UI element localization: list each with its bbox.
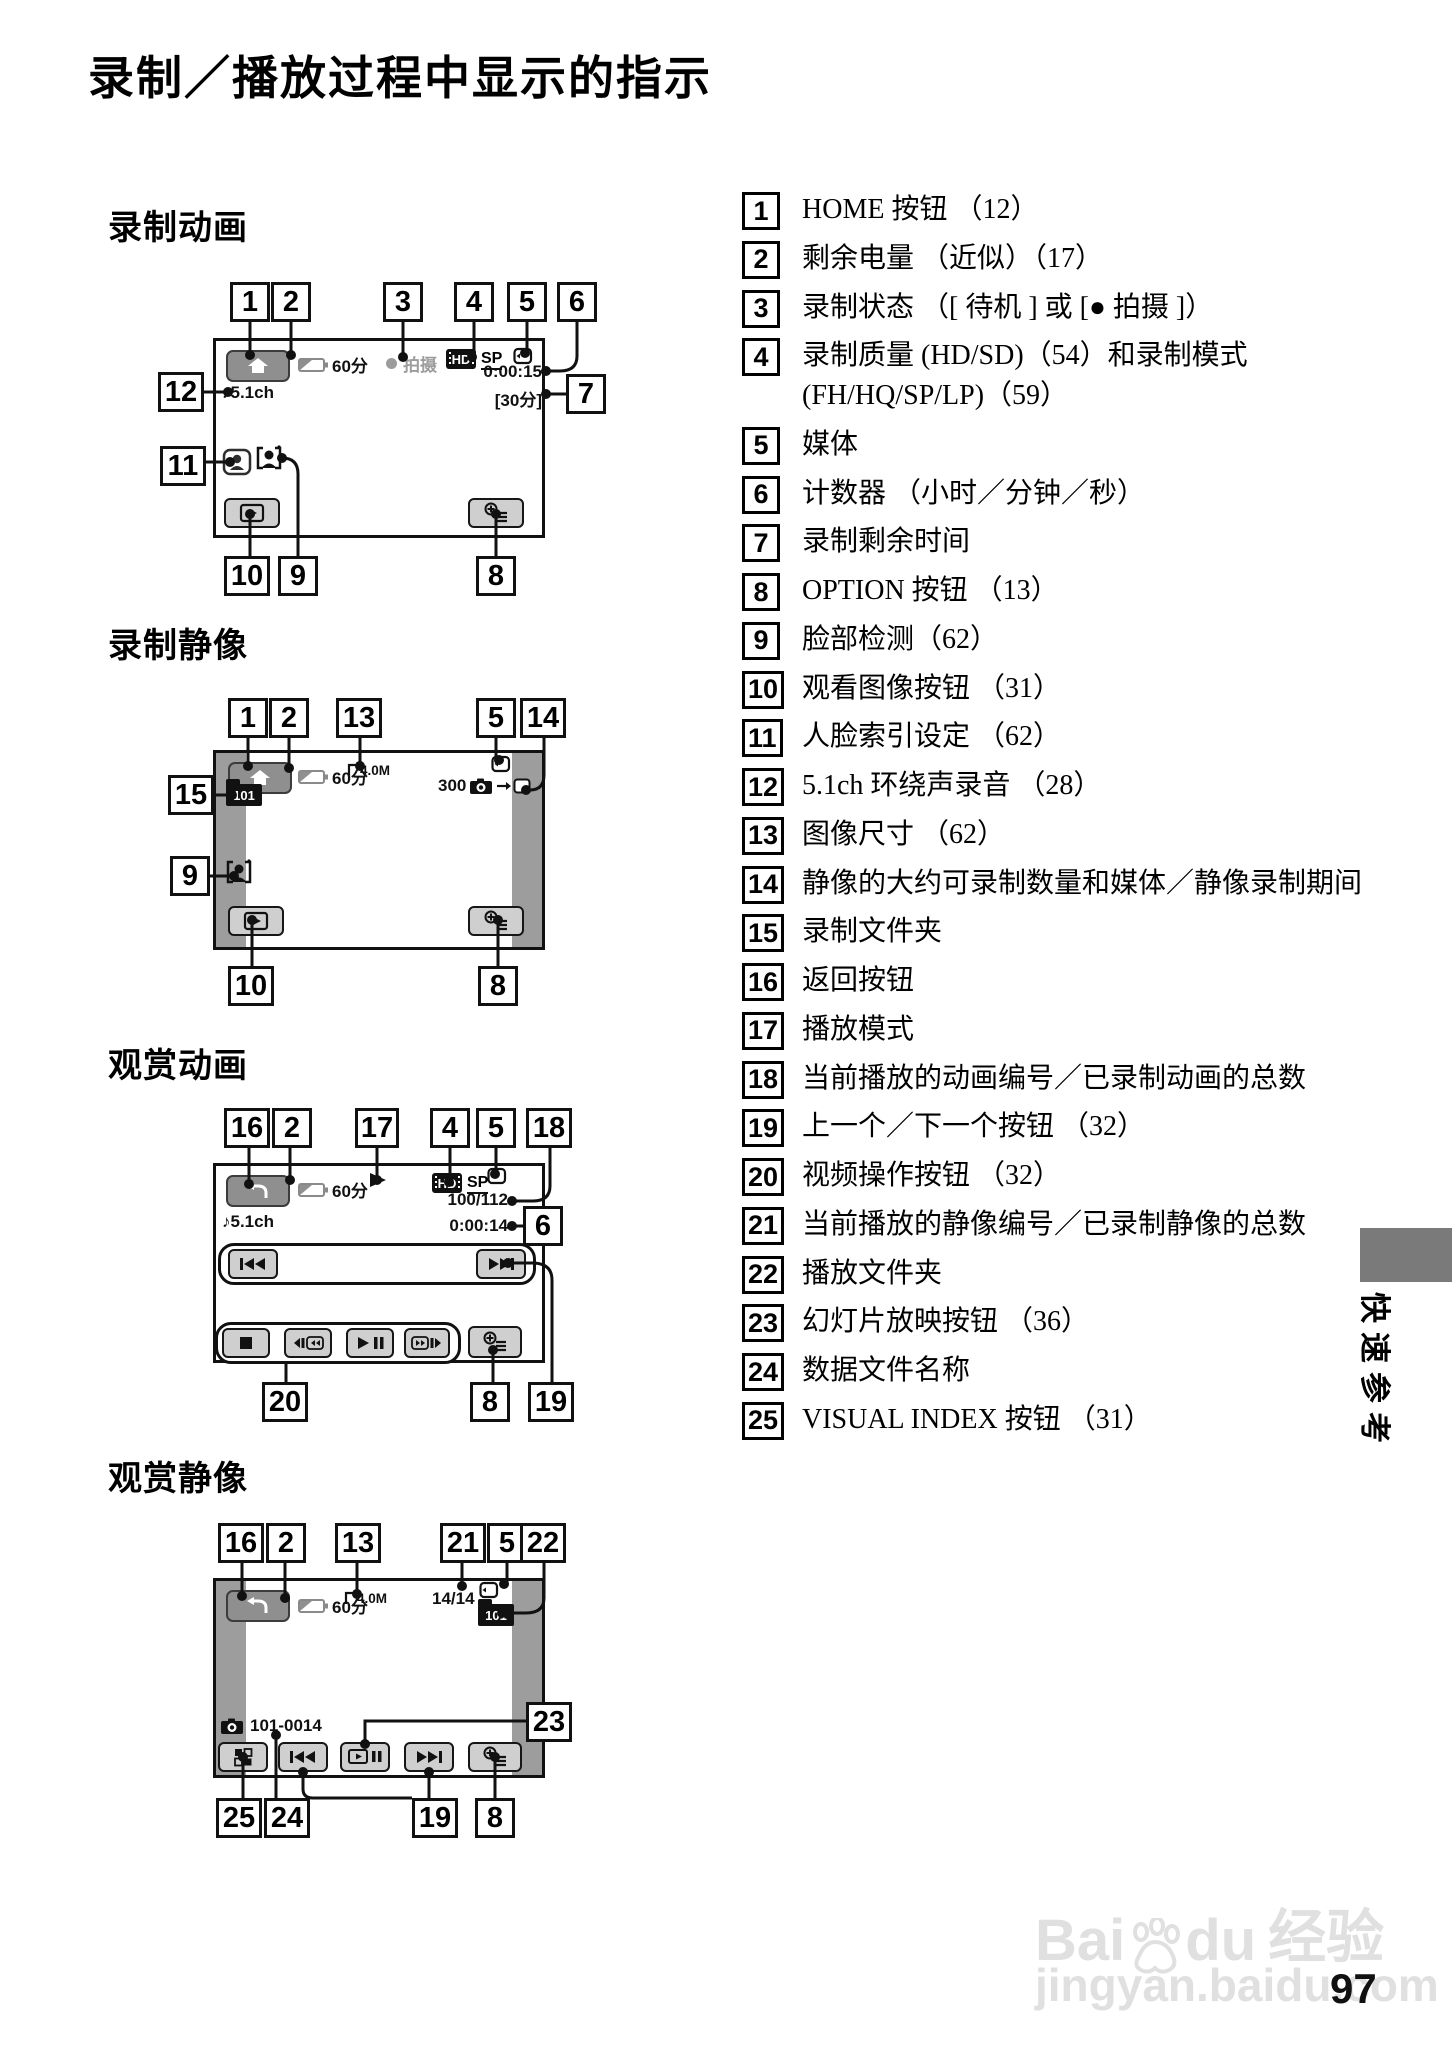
battery-icon	[298, 1182, 328, 1198]
stop-icon	[239, 1336, 253, 1350]
rec-folder-badge: 101	[226, 784, 262, 806]
image-size-label: 4.0M	[357, 1591, 387, 1606]
legend-item: 13图像尺寸 （62）	[742, 815, 1414, 855]
section-heading-rec-still: 录制静像	[108, 618, 248, 667]
legend-num: 16	[742, 963, 784, 1001]
media-mini-card-icon	[513, 778, 531, 794]
legend-item: 11人脸索引设定 （62）	[742, 717, 1414, 757]
legend-num: 20	[742, 1158, 784, 1196]
face-detection-icon	[224, 858, 254, 886]
option-button	[468, 1742, 522, 1772]
home-button	[226, 350, 290, 382]
callout-14: 14	[520, 698, 566, 738]
callout-8: 8	[470, 1382, 510, 1422]
option-icon	[483, 910, 509, 932]
callout-12: 12	[158, 372, 204, 412]
section-heading-play-movie: 观赏动画	[108, 1038, 248, 1087]
callout-19: 19	[412, 1798, 458, 1838]
legend-text: 视频操作按钮 （32）	[802, 1160, 1061, 1191]
callout-5: 5	[476, 1108, 516, 1148]
previous-button	[228, 1249, 278, 1279]
legend-item: 15录制文件夹	[742, 912, 1414, 952]
legend-num: 5	[742, 427, 780, 465]
battery-indicator: 60分	[298, 352, 368, 377]
legend-num: 22	[742, 1256, 784, 1294]
callout-23: 23	[526, 1702, 572, 1742]
legend-item: 6计数器 （小时／分钟／秒）	[742, 474, 1414, 514]
legend-item: 4录制质量 (HD/SD)（54）和录制模式 (FH/HQ/SP/LP)（59）	[742, 336, 1414, 416]
legend-num: 17	[742, 1012, 784, 1050]
callout-11: 11	[160, 446, 206, 486]
counter: 0:00:15	[420, 362, 542, 382]
page-title: 录制／播放过程中显示的指示	[88, 42, 712, 108]
callout-17: 17	[355, 1108, 399, 1148]
camera-icon	[220, 1717, 244, 1735]
legend-item: 14静像的大约可录制数量和媒体／静像录制期间	[742, 864, 1414, 904]
play-pause-icon	[355, 1335, 385, 1351]
option-button	[468, 498, 524, 528]
legend-item: 125.1ch 环绕声录音 （28）	[742, 766, 1414, 806]
legend-item: 25VISUAL INDEX 按钮 （31）	[742, 1400, 1414, 1440]
legend-item: 5媒体	[742, 425, 1414, 465]
slideshow-button	[340, 1742, 390, 1772]
legend-text: 脸部检测（62）	[802, 624, 998, 655]
face-detection-icon	[254, 444, 284, 472]
callout-4: 4	[430, 1108, 470, 1148]
callout-19: 19	[528, 1382, 574, 1422]
remaining-time: [30分]	[420, 386, 542, 411]
legend-num: 25	[742, 1402, 784, 1440]
legend-item: 24数据文件名称	[742, 1351, 1414, 1391]
legend-text: 录制状态 （[ 待机 ] 或 [● 拍摄 ]）	[802, 292, 1213, 323]
legend-num: 4	[742, 338, 780, 376]
legend-text: 当前播放的动画编号／已录制动画的总数	[802, 1063, 1306, 1094]
next-button	[404, 1742, 454, 1772]
callout-6: 6	[523, 1206, 563, 1246]
media-card-icon	[478, 1580, 500, 1600]
legend-num: 2	[742, 241, 780, 279]
callout-2: 2	[272, 1108, 312, 1148]
legend-item: 3录制状态 （[ 待机 ] 或 [● 拍摄 ]）	[742, 288, 1414, 328]
legend-item: 2剩余电量 （近似）（17）	[742, 239, 1414, 279]
legend-text: 媒体	[802, 429, 858, 460]
previous-icon	[288, 1749, 318, 1765]
callout-9: 9	[170, 856, 210, 896]
playback-mode-icon	[368, 1171, 388, 1189]
legend-text: 录制质量 (HD/SD)（54）和录制模式 (FH/HQ/SP/LP)（59）	[802, 340, 1248, 411]
image-size-icon	[346, 760, 359, 780]
battery-indicator: 60分	[298, 1177, 368, 1202]
previous-button	[278, 1742, 328, 1772]
callout-13: 13	[335, 1523, 381, 1563]
watermark-url: jingyan.baidu.com	[1035, 1958, 1439, 2012]
callout-5: 5	[507, 282, 547, 322]
next-icon	[486, 1256, 516, 1272]
stop-button	[222, 1328, 270, 1358]
image-size-icon	[343, 1588, 356, 1608]
legend-text: 当前播放的静像编号／已录制静像的总数	[802, 1209, 1306, 1240]
forward-slow-button	[404, 1328, 450, 1358]
movie-index: 100/112	[386, 1190, 508, 1210]
callout-25: 25	[216, 1798, 262, 1838]
legend-text: 录制剩余时间	[802, 526, 970, 557]
legend-text: 人脸索引设定 （62）	[802, 721, 1061, 752]
counter: 0:00:14	[386, 1216, 508, 1236]
callout-10: 10	[228, 966, 274, 1006]
audio-51ch: ♪5.1ch	[222, 1212, 274, 1232]
data-file-name: 101-0014	[220, 1716, 322, 1736]
audio-51ch: ♪5.1ch	[222, 383, 274, 403]
visual-index-button	[218, 1742, 268, 1772]
view-images-icon	[239, 503, 265, 523]
callout-5: 5	[476, 698, 516, 738]
legend-num: 6	[742, 476, 780, 514]
arrow-right-icon	[496, 780, 511, 792]
next-button	[476, 1249, 526, 1279]
legend-text: 播放文件夹	[802, 1258, 942, 1289]
legend-num: 13	[742, 817, 784, 855]
legend-text: 图像尺寸 （62）	[802, 819, 1005, 850]
legend-text: 计数器 （小时／分钟／秒）	[802, 478, 1145, 509]
callout-18: 18	[526, 1108, 572, 1148]
chapter-tab	[1360, 1228, 1452, 1282]
image-size-indicator: 4.0M	[343, 1588, 387, 1608]
remaining-photos-indicator: 300	[438, 776, 531, 796]
return-arrow-icon	[245, 1181, 271, 1201]
legend-item: 8OPTION 按钮 （13）	[742, 571, 1414, 611]
legend-item: 19上一个／下一个按钮 （32）	[742, 1107, 1414, 1147]
option-icon	[482, 1746, 508, 1768]
playback-folder-number: 101	[485, 1608, 507, 1623]
legend-item: 7录制剩余时间	[742, 522, 1414, 562]
callout-16: 16	[218, 1523, 264, 1563]
view-images-button	[228, 906, 284, 936]
callout-2: 2	[269, 698, 309, 738]
callout-15: 15	[168, 775, 214, 815]
legend-num: 8	[742, 573, 780, 611]
callout-2: 2	[266, 1523, 306, 1563]
callout-13: 13	[336, 698, 382, 738]
legend-item: 20视频操作按钮 （32）	[742, 1156, 1414, 1196]
callout-9: 9	[278, 556, 318, 596]
manual-page: 录制／播放过程中显示的指示 录制动画 1 2 3 4 5 6 7 8 9 10 …	[0, 0, 1452, 2064]
battery-minutes: 60分	[332, 352, 368, 377]
legend-num: 15	[742, 914, 784, 952]
legend-num: 11	[742, 719, 783, 757]
section-heading-play-still: 观赏静像	[108, 1451, 248, 1500]
legend-text: VISUAL INDEX 按钮 （31）	[802, 1404, 1152, 1435]
face-index-icon	[222, 448, 252, 476]
file-number: 101-0014	[250, 1716, 322, 1736]
camera-icon	[469, 777, 493, 795]
return-button	[226, 1175, 290, 1207]
image-size-label: 4.0M	[360, 763, 390, 778]
legend-list: 1HOME 按钮 （12） 2剩余电量 （近似）（17） 3录制状态 （[ 待机…	[742, 190, 1414, 1449]
callout-21: 21	[440, 1523, 486, 1563]
legend-text: 观看图像按钮 （31）	[802, 673, 1061, 704]
legend-text: 静像的大约可录制数量和媒体／静像录制期间	[802, 868, 1362, 899]
legend-item: 23幻灯片放映按钮 （36）	[742, 1302, 1414, 1342]
legend-item: 22播放文件夹	[742, 1254, 1414, 1294]
callout-24: 24	[264, 1798, 310, 1838]
legend-num: 19	[742, 1109, 784, 1147]
battery-icon	[298, 1598, 328, 1614]
legend-text: HOME 按钮 （12）	[802, 194, 1038, 225]
callout-1: 1	[228, 698, 268, 738]
option-icon	[482, 1331, 508, 1353]
legend-num: 3	[742, 290, 780, 328]
legend-text: OPTION 按钮 （13）	[802, 575, 1059, 606]
legend-text: 幻灯片放映按钮 （36）	[802, 1306, 1089, 1337]
legend-num: 1	[742, 192, 780, 230]
callout-2: 2	[271, 282, 311, 322]
legend-item: 10观看图像按钮 （31）	[742, 669, 1414, 709]
callout-10: 10	[224, 556, 270, 596]
return-arrow-icon	[245, 1596, 271, 1616]
reverse-slow-icon	[291, 1335, 325, 1351]
legend-item: 17播放模式	[742, 1010, 1414, 1050]
legend-text: 剩余电量 （近似）（17）	[802, 243, 1103, 274]
section-heading-rec-movie: 录制动画	[108, 200, 248, 249]
legend-num: 23	[742, 1304, 784, 1342]
callout-1: 1	[230, 282, 270, 322]
callout-8: 8	[476, 556, 516, 596]
image-size-indicator: 4.0M	[346, 760, 390, 780]
home-icon	[247, 357, 269, 375]
legend-text: 数据文件名称	[802, 1355, 970, 1386]
page-number: 97	[1330, 1965, 1377, 2013]
option-button	[468, 906, 524, 936]
option-button	[468, 1326, 522, 1358]
battery-minutes: 60分	[332, 1177, 368, 1202]
rec-dot-icon	[386, 358, 397, 369]
legend-item: 16返回按钮	[742, 961, 1414, 1001]
reverse-slow-button	[284, 1328, 332, 1358]
callout-6: 6	[557, 282, 597, 322]
legend-num: 24	[742, 1353, 784, 1391]
legend-num: 7	[742, 524, 780, 562]
legend-text: 返回按钮	[802, 965, 914, 996]
legend-item: 9脸部检测（62）	[742, 620, 1414, 660]
callout-16: 16	[224, 1108, 270, 1148]
media-card-icon	[490, 754, 512, 774]
legend-item: 1HOME 按钮 （12）	[742, 190, 1414, 230]
legend-num: 10	[742, 671, 784, 709]
forward-slow-icon	[410, 1335, 444, 1351]
option-icon	[483, 502, 509, 524]
rec-folder-number: 101	[233, 788, 255, 803]
callout-8: 8	[475, 1798, 515, 1838]
visual-index-icon	[233, 1747, 253, 1767]
previous-icon	[238, 1256, 268, 1272]
legend-text: 上一个／下一个按钮 （32）	[802, 1111, 1145, 1142]
legend-item: 18当前播放的动画编号／已录制动画的总数	[742, 1059, 1414, 1099]
callout-22: 22	[520, 1523, 566, 1563]
still-index: 14/14	[432, 1589, 475, 1609]
media-card-icon	[486, 1166, 508, 1186]
legend-item: 21当前播放的静像编号／已录制静像的总数	[742, 1205, 1414, 1245]
photo-count: 300	[438, 776, 466, 796]
play-pause-button	[346, 1328, 394, 1358]
legend-text: 5.1ch 环绕声录音 （28）	[802, 770, 1101, 801]
legend-num: 18	[742, 1061, 784, 1099]
legend-num: 12	[742, 768, 784, 806]
legend-num: 14	[742, 866, 784, 904]
slideshow-icon	[347, 1748, 383, 1766]
view-images-icon	[243, 911, 269, 931]
return-button	[226, 1590, 290, 1622]
battery-icon	[298, 357, 328, 373]
legend-num: 21	[742, 1207, 784, 1245]
hd-label: HD	[438, 1176, 457, 1191]
legend-num: 9	[742, 622, 780, 660]
battery-icon	[298, 769, 328, 785]
next-icon	[414, 1749, 444, 1765]
callout-20: 20	[262, 1382, 308, 1422]
legend-text: 播放模式	[802, 1014, 914, 1045]
callout-7: 7	[566, 374, 606, 414]
legend-text: 录制文件夹	[802, 916, 942, 947]
callout-8: 8	[478, 966, 518, 1006]
view-images-button	[224, 498, 280, 528]
playback-folder-badge: 101	[478, 1604, 514, 1626]
callout-4: 4	[454, 282, 494, 322]
callout-3: 3	[383, 282, 423, 322]
